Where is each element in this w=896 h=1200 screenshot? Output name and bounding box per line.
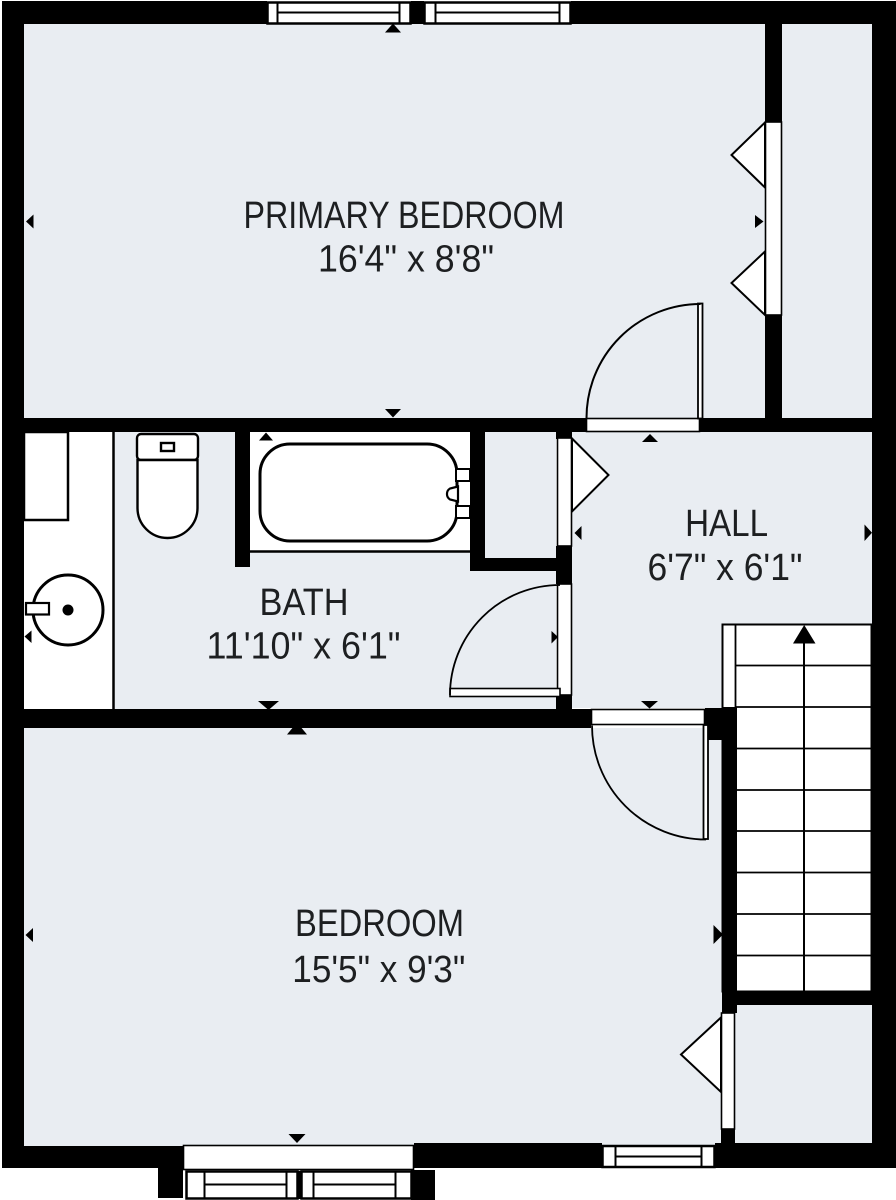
svg-text:6'7" x 6'1": 6'7" x 6'1" bbox=[648, 547, 803, 589]
svg-text:15'5" x 9'3": 15'5" x 9'3" bbox=[292, 949, 465, 991]
svg-text:PRIMARY BEDROOM: PRIMARY BEDROOM bbox=[244, 195, 565, 237]
svg-text:BEDROOM: BEDROOM bbox=[295, 903, 464, 945]
svg-text:BATH: BATH bbox=[260, 582, 349, 624]
svg-text:16'4" x 8'8": 16'4" x 8'8" bbox=[318, 239, 494, 281]
svg-text:HALL: HALL bbox=[685, 503, 768, 545]
svg-text:11'10" x 6'1": 11'10" x 6'1" bbox=[207, 625, 401, 667]
